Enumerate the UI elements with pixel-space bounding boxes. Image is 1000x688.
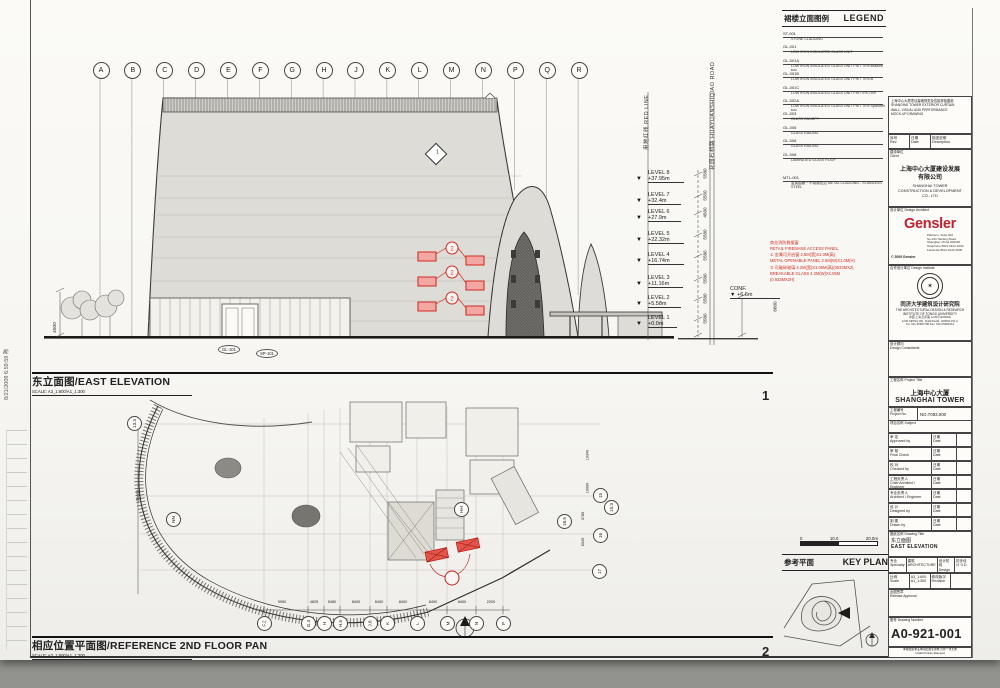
level-datum-icon: ▼ — [636, 281, 642, 287]
grid-bubble: F.2 — [257, 616, 272, 631]
level-datum-icon: ▼ — [636, 176, 642, 182]
road-label: 花园石桥路 HUAYUANSHIQIAO ROAD — [708, 62, 716, 170]
grid-bubble: N — [469, 616, 484, 631]
grid-bubble-hh: HH — [454, 502, 469, 517]
material-tag-sp101: SP-101 — [256, 349, 278, 358]
grid-bubble-13-3: 13.3 — [127, 416, 142, 431]
legend-item: GL-005 GLASS RAILING — [782, 125, 886, 138]
scanned-sheet: 8/21/2009 6:59:59 陈 — [0, 0, 1000, 660]
legend-list: ST-001 STONE CLADDING GL-001 LOW IRON IN… — [782, 31, 886, 193]
drawing-number-box: 图号 Drawing Number A0-921-001 — [888, 617, 972, 647]
legend-item: GL-001A LOW IRON INSULATED GLASS UNIT FR… — [782, 58, 886, 71]
legend-column: 裙楼立面图例 LEGEND ST-001 STONE CLADDING GL-0… — [782, 10, 886, 658]
mockup-stamp-box: 上海中心大厦项目幕墙视觉及性能样板图纸SHANGHAI TOWER EXTERI… — [888, 96, 972, 134]
signoff-row: 审 定Approved by 日期Date — [888, 433, 972, 447]
project-number-box: 工程编号Project No. NO.7093.000 — [888, 407, 972, 421]
plot-date-stamp: 8/21/2009 6:59:59 陈 — [2, 349, 10, 400]
level-row: ▼ LEVEL 5 +22.32m 5580 — [636, 231, 776, 247]
level-row: ▼ LEVEL 6 +27.9m 4500 — [636, 209, 776, 225]
level-datum-icon: ▼ — [636, 258, 642, 264]
subject-box: 项目名称 Subject — [888, 421, 972, 433]
signoff-table: 审 定Approved by 日期Date 审 核Final Check 日期D… — [888, 433, 972, 531]
reference-plan-view: F.2G.4HH.5J.8KLMNP 995048255480840084008… — [130, 398, 790, 654]
legend-item: GL-008 LAMINATED GLASS ROOF — [782, 152, 886, 165]
grid-bubble: 16.5 — [557, 514, 572, 529]
level-row: ▼ LEVEL 4 +16.74m 5580 — [636, 252, 776, 268]
signoff-row: 审 核Final Check 日期Date — [888, 447, 972, 461]
level-datum-icon: ▼ — [636, 237, 642, 243]
dim-36000: 36000 — [135, 490, 140, 502]
title-block-panel: 裙楼立面图例 LEGEND ST-001 STONE CLADDING GL-0… — [782, 10, 972, 658]
fireman-panel-note: 商业消防救援窗RETAIL FIREMANS ACCESS PANEL,① 金属… — [770, 240, 882, 283]
signoff-row: 专业负责人Architect / Engineer 日期Date — [888, 489, 972, 503]
key-plan-map — [782, 576, 886, 654]
signoff-row: 工程负责人Chief Architect / Engineer 日期Date — [888, 475, 972, 489]
client-box: 建设单位Client 上海中心大厦建设发展有限公司 SHANGHAI TOWER… — [888, 149, 972, 207]
architect-address-line: Facsimile 8621.6122.2500 — [927, 249, 969, 253]
level-datum-icon: ▼ — [636, 198, 642, 204]
design-architect-box: 设计单位 Design Architect Gensler Platinum, … — [888, 207, 972, 265]
client-en-line: CO., LTD — [889, 194, 971, 199]
legend-header: 裙楼立面图例 LEGEND — [782, 10, 886, 27]
plan-title-bar: 相应位置平面图/REFERENCE 2ND FLOOR PAN SCALE: A… — [32, 636, 773, 660]
dim-label: 2200 — [480, 600, 502, 604]
signoff-row: 制 图Drawn by 日期Date — [888, 517, 972, 531]
dim-label: 10340 — [585, 450, 589, 461]
legend-item: GL-003 GLASS CANOPY — [782, 111, 886, 124]
graphic-scale-bar: 0 10.0 20.0m — [800, 536, 878, 546]
height-dim-4500: 4500 — [53, 322, 58, 333]
east-elevation-view: 222 — [30, 40, 775, 392]
elevation-title-bar: 东立面图/EAST ELEVATION SCALE: A3_1:600/A1_1… — [32, 372, 773, 396]
grid-bubble: P — [496, 616, 511, 631]
key-plan-header: 参考平面 KEY PLAN — [782, 554, 890, 571]
release-approval-box: 出图签章Release Approval — [888, 589, 972, 617]
grid-bubble: H.5 — [333, 616, 348, 631]
legend-item: GL-001B LOW IRON INSULATED GLASS UNIT FR… — [782, 71, 886, 84]
stamp-line: MOCK-UP DRAWING — [891, 112, 969, 116]
grid-bubble-nn: NN — [166, 512, 181, 527]
dim-label: 9950 — [271, 600, 293, 604]
red-line-label: 用地红线 RED LINE — [642, 95, 650, 150]
legend-item: GL-006 GLASS RAILING — [782, 138, 886, 151]
signoff-row: 校 对Checked by 日期Date — [888, 461, 972, 475]
legend-item: GL-002A LOW IRON INSULATED GLASS UNIT FR… — [782, 98, 886, 111]
revision-edge-strip — [6, 430, 27, 650]
stamp-note-box: 本图纸如未盖本院出图专用章,否则一律无效 Invalid Unless Stam… — [888, 647, 972, 658]
grid-bubble: K — [380, 616, 395, 631]
design-institute-box: 合作设计单位 Design Institute ✶ 同济大学建筑设计研究院 TH… — [888, 265, 972, 341]
grid-bubble: J.8 — [363, 616, 378, 631]
keyplan-north-icon — [866, 632, 878, 646]
dim-label: 8400 — [422, 600, 444, 604]
plan-view-number: 2 — [762, 644, 769, 659]
dim-label: 8400 — [451, 600, 473, 604]
level-datum-icon: ▼ — [636, 301, 642, 307]
title-block-column: 上海中心大厦项目幕墙视觉及性能样板图纸SHANGHAI TOWER EXTERI… — [888, 10, 972, 658]
legend-item: MTL-001 金属围蔽－不锈钢包边 METAL CLADDING - STAI… — [782, 175, 886, 193]
revision-header-row: 序号Rev. 日期Date 描述说明Description — [888, 134, 972, 149]
level-row: ▼ LEVEL 8 +37.95m 5580 — [636, 170, 776, 186]
legend-item: GL-001C LOW IRON INSULATED GLASS UNIT FR… — [782, 85, 886, 98]
grid-bubble: H — [317, 616, 332, 631]
level-annotations: ▼ LEVEL 8 +37.95m 5580 ▼ LEVEL 7 +32.4m … — [30, 40, 775, 392]
institute-seal-icon: ✶ — [917, 273, 943, 299]
grid-bubble: G.4 — [301, 616, 316, 631]
level-row: ▼ LEVEL 1 +0.0m 5580 — [636, 315, 776, 331]
drawing-number: A0-921-001 — [891, 626, 971, 641]
dim-label: 10000 — [585, 483, 589, 494]
grid-bubble: 16 — [593, 528, 608, 543]
dim-label: 8400 — [392, 600, 414, 604]
sheet-frame-right — [972, 8, 973, 658]
grid-bubble: 15.3 — [604, 500, 619, 515]
design-consultants-box: 设计顾问Design Consultants — [888, 341, 972, 377]
specialty-row: 专业Specialty 建筑ARCHITECTURE 设计阶段Design St… — [888, 557, 972, 573]
grid-bubble: 17 — [592, 564, 607, 579]
legend-item: ST-001 STONE CLADDING — [782, 31, 886, 44]
conf-level: CONF. ▼ +6.6m 6600 — [730, 286, 780, 299]
level-row: ▼ LEVEL 7 +32.4m 5550 — [636, 192, 776, 208]
conf-datum-icon: ▼ — [730, 292, 735, 298]
gensler-logo: Gensler — [889, 216, 971, 232]
level-datum-icon: ▼ — [636, 215, 642, 221]
plan-interior — [215, 402, 539, 560]
level-datum-icon: ▼ — [636, 321, 642, 327]
project-title-box: 工程名称 Project Title 上海中心大厦 SHANGHAI TOWER — [888, 377, 972, 407]
dim-label: 3785 — [581, 512, 585, 520]
dim-label: 6345 — [581, 538, 585, 546]
legend-item: GL-001 LOW IRON INSULATED GLASS UNIT — [782, 44, 886, 57]
drawing-title-box: 图纸名称 Drawing Title 东立面图 EAST ELEVATION — [888, 531, 972, 557]
scale-bar-icon — [800, 541, 878, 546]
signoff-row: 设 计Designed by 日期Date — [888, 503, 972, 517]
dim-label: 8400 — [345, 600, 367, 604]
dim-label: 8400 — [368, 600, 390, 604]
red-note-line: (0.933MX2H) — [770, 277, 882, 283]
material-tag-gl101: GL-101 — [218, 345, 240, 354]
plan-drawing-art — [130, 398, 790, 654]
grid-bubble: L — [410, 616, 425, 631]
dim-label: 5480 — [321, 600, 343, 604]
scale-row: 比例Scale A3_1:600A1_1:300 修改版次Revision — [888, 573, 972, 589]
grid-bubble: M — [440, 616, 455, 631]
